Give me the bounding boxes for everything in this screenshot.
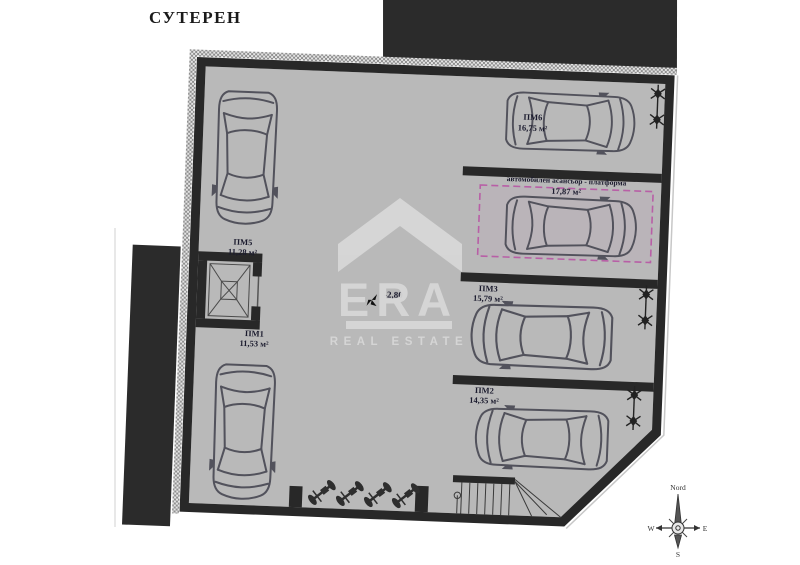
space-id: ПМ5 (233, 237, 252, 248)
compass-west-label: W (647, 524, 655, 533)
space-id: ПМ6 (523, 112, 542, 123)
car-lift-platform (478, 185, 654, 263)
era-divider-bar (346, 321, 452, 329)
ramp-wall-stub-left (289, 486, 303, 507)
space-area: 16,75 м² (518, 122, 548, 133)
floor-plan-drawing: -2,80 ПМ5 11,28 м² ПМ1 11,53 м² ПМ6 16,7… (0, 0, 800, 565)
car-lift-area: 17,87 м² (551, 186, 581, 197)
era-brand-text: ERA (338, 273, 458, 326)
space-id: ПМ1 (245, 328, 264, 339)
floor-plan-page: СУТЕРЕН (0, 0, 800, 565)
space-area: 15,79 м² (473, 293, 503, 304)
space-area: 11,53 м² (239, 338, 269, 349)
space-area: 11,28 м² (228, 246, 258, 257)
compass-east-label: E (703, 524, 708, 533)
space-id: ПМ3 (479, 283, 498, 294)
space-id: ПМ2 (475, 385, 494, 396)
space-area: 14,35 м² (469, 395, 499, 406)
compass-rose: Nord W E S (647, 483, 707, 559)
era-tagline-text: REAL ESTATE (330, 336, 468, 348)
adjacent-building-mass-left (122, 245, 181, 527)
compass-north-label: Nord (670, 483, 686, 492)
compass-south-label: S (676, 550, 680, 559)
